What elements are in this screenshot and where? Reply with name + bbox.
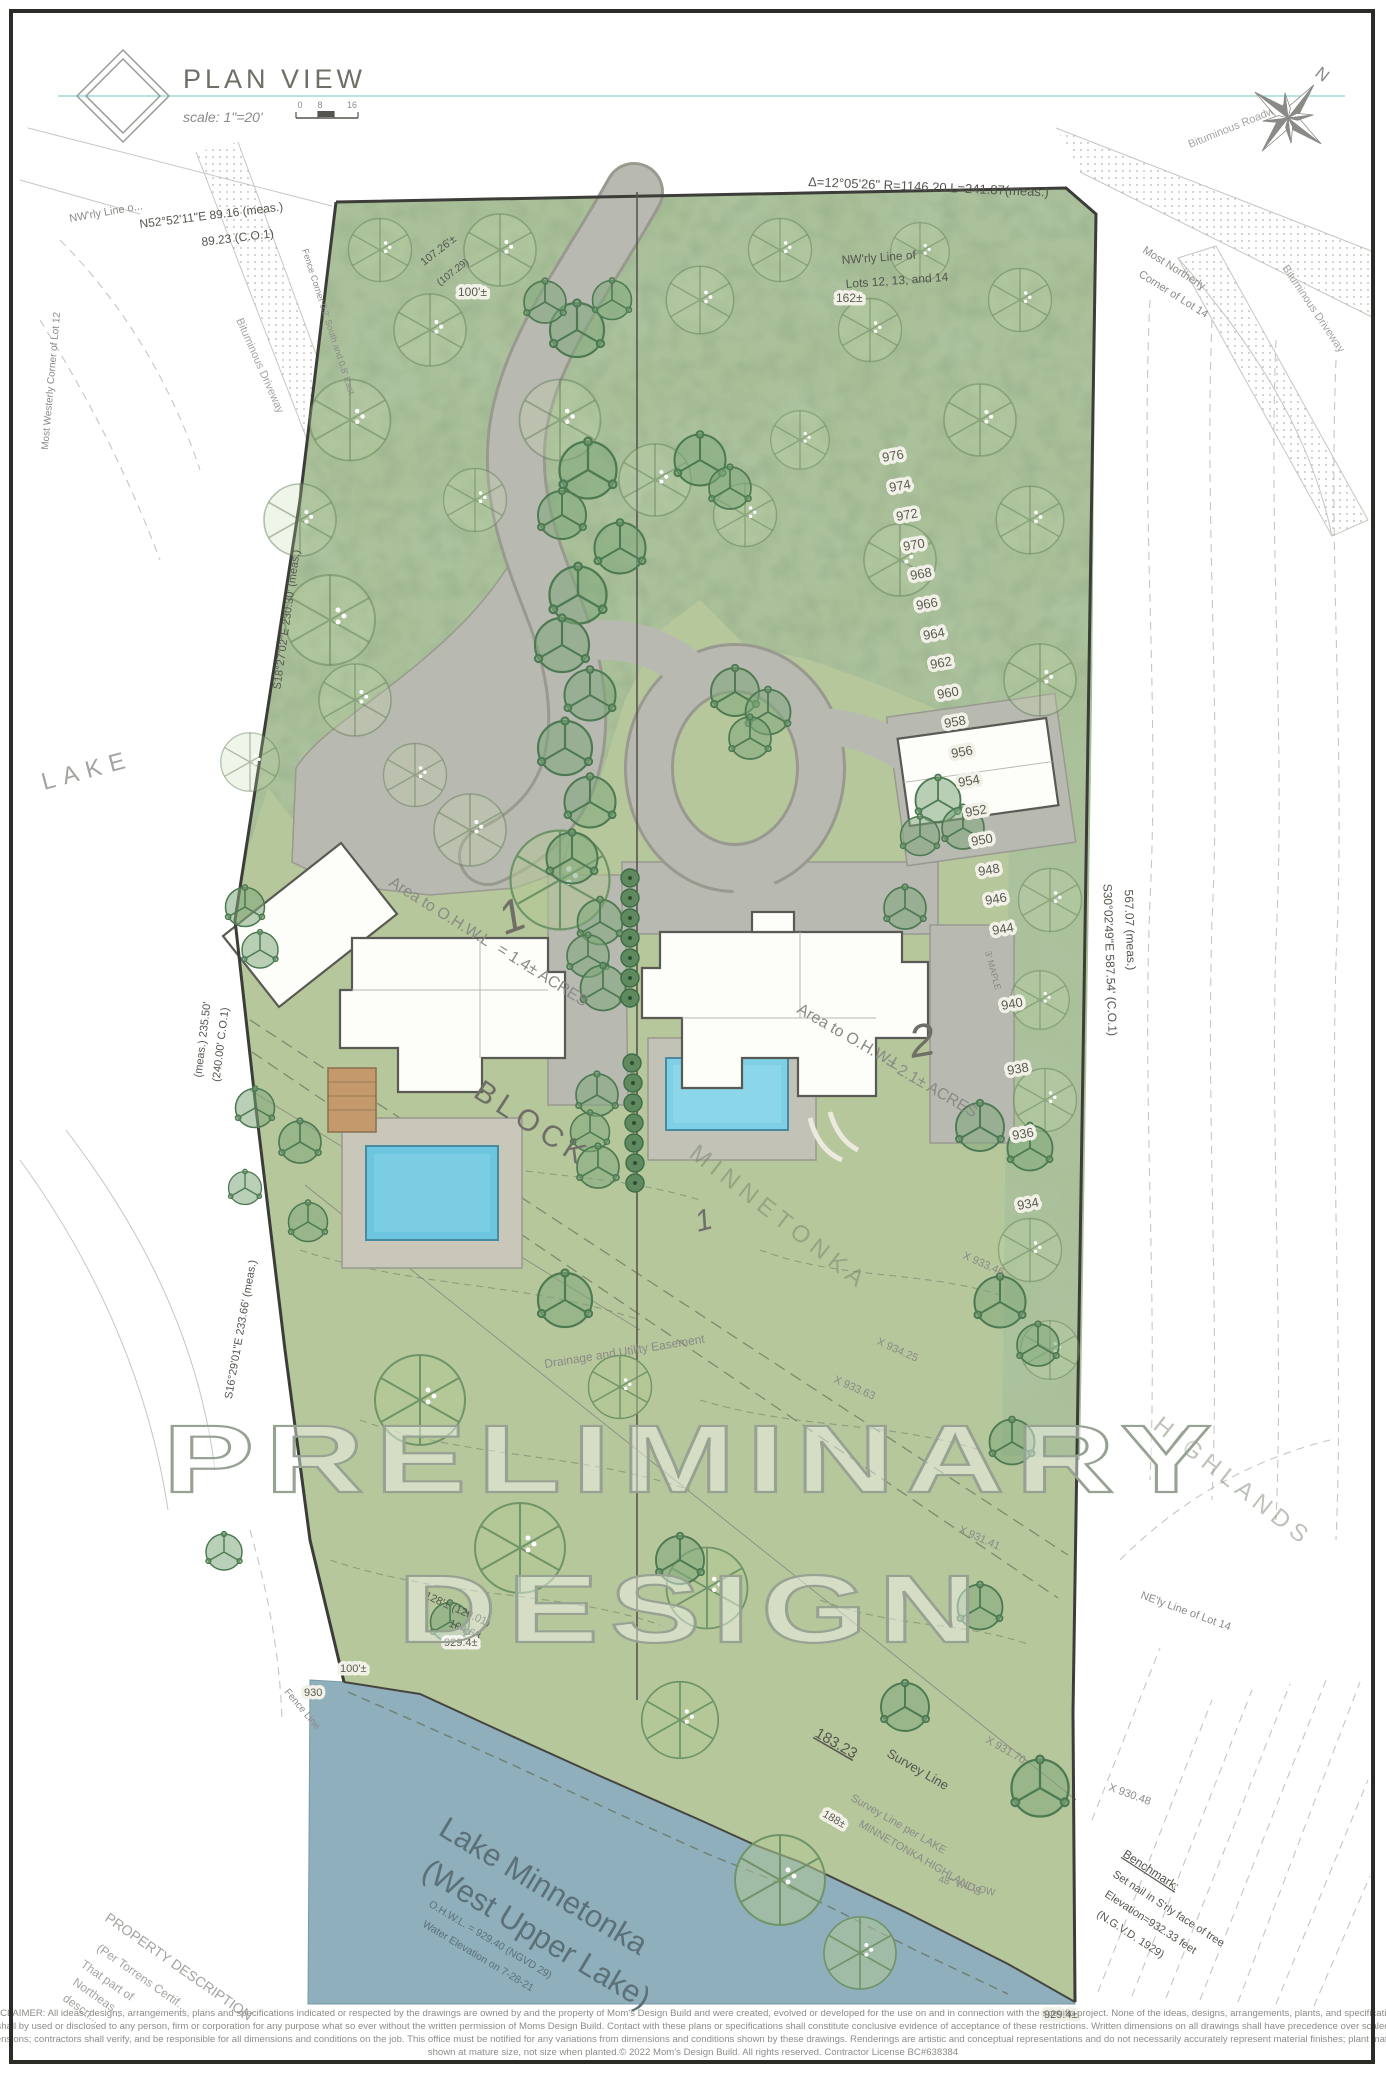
- tree-icon: [319, 664, 391, 736]
- north-compass-icon: N: [1229, 41, 1361, 177]
- north-label: N: [1311, 63, 1332, 86]
- disclaimer-line-1: DISCLAIMER: All ideas, designs, arrangem…: [0, 2008, 1386, 2019]
- header: PLAN VIEW scale: 1"=20' 0 8 16 N: [58, 41, 1361, 177]
- tree-icon: [771, 411, 830, 470]
- meas-235: (meas.) 235.50': [192, 1001, 213, 1078]
- tree-icon: [349, 219, 412, 282]
- tree-icon: [989, 269, 1052, 332]
- tree-icon: [642, 1682, 719, 1759]
- tree-icon: [229, 1169, 262, 1204]
- dim-100-top: 100'±: [458, 285, 487, 299]
- tree-icon: [464, 214, 536, 286]
- tree-icon: [996, 486, 1064, 554]
- tree-icon: [824, 1917, 896, 1989]
- tree-icon: [285, 575, 375, 665]
- dim-162: 162±: [836, 291, 863, 305]
- tree-icon: [1014, 1069, 1077, 1132]
- disclaimer-line-3: dimensions; contractors shall verify, an…: [0, 2034, 1386, 2045]
- tree-icon: [444, 469, 507, 532]
- tree-icon: [394, 294, 466, 366]
- plan-sheet: NW'rly Line o... N52°52'11"E 89.16 (meas…: [0, 0, 1386, 2080]
- tree-icon: [264, 484, 336, 556]
- s30-bearing-2: 567.07 (meas.): [1122, 889, 1139, 970]
- watermark-line2: DESIGN: [398, 1556, 988, 1663]
- c240: (240.00' C.O.1): [211, 1007, 232, 1083]
- s16-bearing: S16°29'01"E 233.66' (meas.): [223, 1259, 259, 1400]
- tree-icon: [735, 1835, 825, 1925]
- disclaimer: DISCLAIMER: All ideas, designs, arrangem…: [0, 2008, 1386, 2058]
- disclaimer-line-2: shall by used or disclosed to any person…: [0, 2021, 1386, 2032]
- neline-label: NE'ly Line of Lot 14: [1139, 1590, 1232, 1634]
- svg-text:8: 8: [317, 100, 322, 110]
- tree-icon: [206, 1532, 242, 1570]
- most-westerly-label: Most Westerly Corner of Lot 12: [40, 311, 63, 450]
- disclaimer-line-4: shown at mature size, not size when plan…: [428, 2047, 959, 2058]
- tree-icon: [666, 266, 734, 334]
- tree-icon: [749, 219, 812, 282]
- tree-icon: [944, 384, 1016, 456]
- scale-label: scale: 1"=20': [183, 109, 264, 125]
- watermark-line1: PRELIMINARY: [163, 1406, 1223, 1513]
- tree-icon: [1019, 869, 1082, 932]
- tree-icon: [839, 299, 902, 362]
- dim-100-shore: 100'±: [340, 1663, 367, 1675]
- svg-text:0: 0: [297, 100, 302, 110]
- tree-icon: [384, 744, 447, 807]
- wood-deck: [328, 1068, 376, 1132]
- tree-icon: [864, 524, 936, 596]
- svg-text:16: 16: [347, 100, 357, 110]
- spot-93048: X 930.48: [1107, 1782, 1152, 1808]
- tree-icon: [221, 733, 280, 792]
- scale-bar: 0 8 16: [296, 100, 358, 118]
- lake-west-label: LAKE: [39, 746, 136, 796]
- s30-bearing-1: S30°02'49"E 587.54' (C.O.1): [1100, 883, 1119, 1036]
- dim-930: 930: [304, 1687, 322, 1699]
- page-title: PLAN VIEW: [183, 64, 366, 94]
- tree-icon: [999, 1219, 1062, 1282]
- tree-icon: [434, 794, 506, 866]
- tree-icon: [1004, 644, 1076, 716]
- plan-drawing: NW'rly Line o... N52°52'11"E 89.16 (meas…: [0, 0, 1386, 2080]
